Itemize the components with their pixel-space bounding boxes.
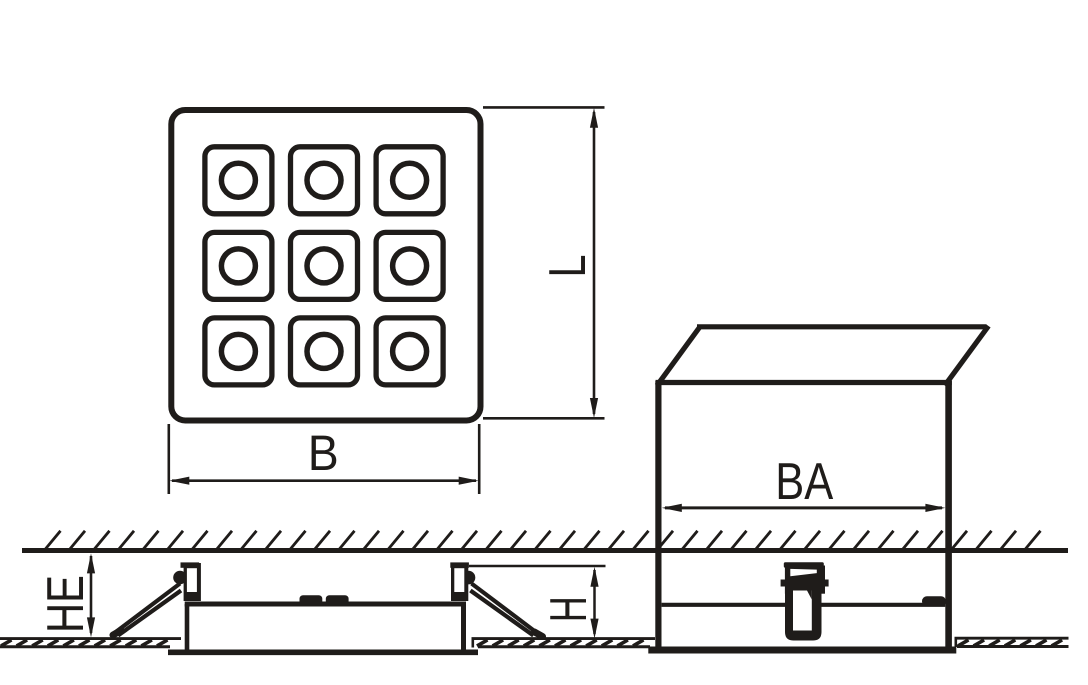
svg-text:BA: BA <box>775 453 833 511</box>
svg-text:HE: HE <box>37 575 95 633</box>
svg-text:L: L <box>539 255 597 278</box>
svg-text:B: B <box>308 425 339 481</box>
svg-text:H: H <box>540 596 598 622</box>
